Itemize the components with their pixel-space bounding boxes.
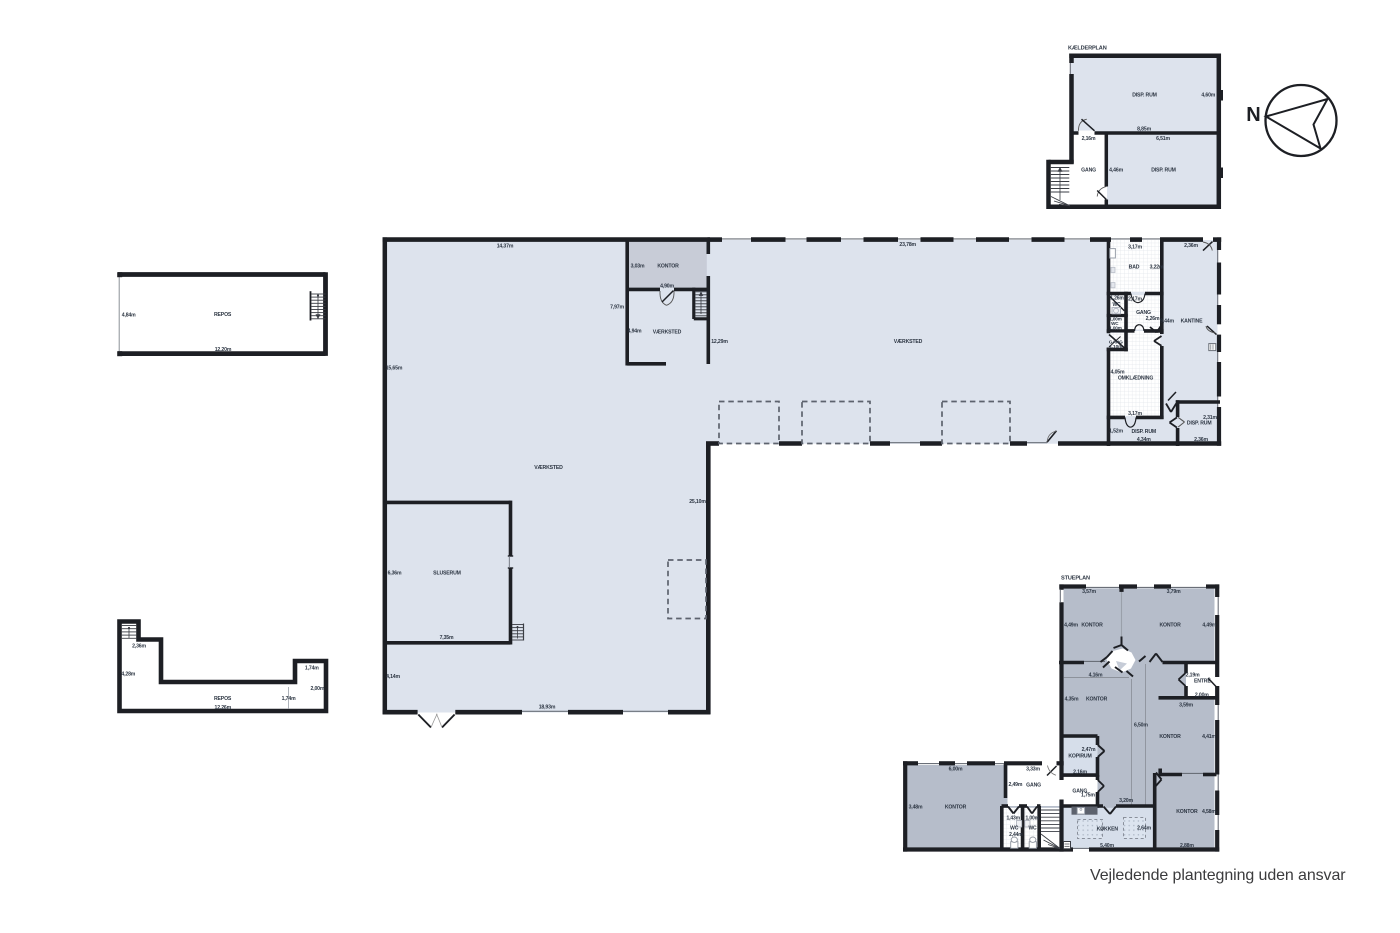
- svg-text:DISP. RUM: DISP. RUM: [1132, 429, 1157, 435]
- svg-text:1,00m: 1,00m: [1109, 326, 1121, 331]
- svg-text:2,16m: 2,16m: [1082, 136, 1096, 142]
- svg-text:3,59m: 3,59m: [1179, 702, 1193, 708]
- svg-text:3,20m: 3,20m: [1119, 798, 1133, 804]
- svg-text:23,78m: 23,78m: [899, 242, 916, 248]
- svg-text:6,50m: 6,50m: [1134, 722, 1148, 728]
- svg-text:2,36m: 2,36m: [1184, 243, 1198, 249]
- svg-text:KONTOR: KONTOR: [1159, 623, 1181, 629]
- svg-text:SLUSERUM: SLUSERUM: [433, 570, 461, 576]
- svg-text:2,47m: 2,47m: [1082, 747, 1096, 753]
- svg-text:3,33m: 3,33m: [1026, 766, 1040, 772]
- svg-text:6,36m: 6,36m: [388, 570, 402, 576]
- svg-text:1,10m: 1,10m: [1109, 344, 1122, 350]
- svg-text:OMKLÆDNING: OMKLÆDNING: [1118, 375, 1153, 381]
- svg-text:1,74m: 1,74m: [305, 666, 319, 672]
- svg-text:KONTOR: KONTOR: [657, 264, 679, 270]
- svg-text:4,49m: 4,49m: [1202, 623, 1216, 629]
- svg-text:4,60m: 4,60m: [1201, 93, 1215, 99]
- svg-text:4,84m: 4,84m: [122, 313, 136, 319]
- svg-text:KONTOR: KONTOR: [1086, 697, 1108, 703]
- svg-text:7,97m: 7,97m: [610, 305, 624, 311]
- svg-text:3,48m: 3,48m: [909, 805, 923, 811]
- svg-text:4,35m: 4,35m: [1065, 697, 1079, 703]
- svg-text:3,57m: 3,57m: [1082, 589, 1096, 595]
- svg-text:4,14m: 4,14m: [386, 674, 400, 680]
- svg-text:14,37m: 14,37m: [497, 244, 514, 250]
- svg-text:2,88m: 2,88m: [1180, 843, 1194, 849]
- svg-text:DISP. RUM: DISP. RUM: [1132, 93, 1157, 99]
- svg-text:KØKKEN: KØKKEN: [1097, 826, 1119, 832]
- svg-text:2,44m: 2,44m: [1009, 832, 1023, 838]
- svg-text:4,49m: 4,49m: [1064, 623, 1078, 629]
- svg-text:WC: WC: [1010, 825, 1019, 831]
- svg-text:KOPIRUM: KOPIRUM: [1068, 754, 1091, 760]
- svg-text:GANG: GANG: [1026, 783, 1041, 789]
- svg-text:2,00m: 2,00m: [310, 686, 324, 692]
- svg-text:KONTOR: KONTOR: [1176, 809, 1198, 815]
- svg-text:BAD: BAD: [1129, 265, 1140, 271]
- svg-text:12,29m: 12,29m: [711, 339, 728, 345]
- svg-text:4,34m: 4,34m: [1137, 437, 1151, 443]
- svg-text:12,20m: 12,20m: [215, 347, 232, 353]
- svg-text:1,00m: 1,00m: [1025, 816, 1039, 822]
- svg-text:3,03m: 3,03m: [631, 264, 645, 270]
- svg-text:2,00m: 2,00m: [1195, 692, 1209, 698]
- svg-text:KÆLDERPLAN: KÆLDERPLAN: [1068, 46, 1107, 52]
- svg-text:2,49m: 2,49m: [1008, 782, 1022, 788]
- svg-text:WC: WC: [1028, 825, 1037, 831]
- svg-text:4,90m: 4,90m: [660, 283, 674, 289]
- svg-text:2,17m: 2,17m: [1128, 296, 1142, 302]
- svg-text:1,52m: 1,52m: [1109, 428, 1123, 434]
- svg-text:7,35m: 7,35m: [440, 635, 454, 641]
- svg-text:1,75m: 1,75m: [1081, 793, 1095, 799]
- svg-text:8,85m: 8,85m: [1137, 127, 1151, 133]
- svg-text:4,41m: 4,41m: [1202, 734, 1216, 740]
- svg-text:12,26m: 12,26m: [215, 705, 232, 711]
- svg-text:4,28m: 4,28m: [121, 672, 135, 678]
- svg-text:4,16m: 4,16m: [1089, 673, 1103, 679]
- svg-text:25,10m: 25,10m: [689, 499, 706, 505]
- svg-text:2,36m: 2,36m: [1194, 437, 1208, 443]
- svg-text:2,16m: 2,16m: [1073, 769, 1087, 775]
- svg-text:5,40m: 5,40m: [1100, 843, 1114, 849]
- svg-text:DISP. RUM: DISP. RUM: [1151, 168, 1176, 174]
- svg-text:2,36m: 2,36m: [132, 643, 146, 649]
- svg-text:N: N: [1246, 104, 1260, 126]
- svg-text:REPOS: REPOS: [214, 312, 232, 318]
- svg-text:18,93m: 18,93m: [539, 705, 556, 711]
- svg-text:3,17m: 3,17m: [1128, 411, 1142, 417]
- svg-text:6,51m: 6,51m: [1156, 136, 1170, 142]
- svg-text:2,26m: 2,26m: [1146, 316, 1160, 322]
- svg-text:VÆRKSTED: VÆRKSTED: [653, 330, 682, 336]
- svg-text:GANG: GANG: [1081, 168, 1096, 174]
- svg-text:6,00m: 6,00m: [949, 766, 963, 772]
- svg-text:4,94m: 4,94m: [628, 329, 642, 335]
- svg-text:KONTOR: KONTOR: [1081, 623, 1103, 629]
- svg-text:KONTOR: KONTOR: [945, 805, 967, 811]
- svg-text:1,43m: 1,43m: [1006, 816, 1020, 822]
- svg-text:Vejledende plantegning uden an: Vejledende plantegning uden ansvar: [1090, 867, 1346, 884]
- svg-text:VÆRKSTED: VÆRKSTED: [894, 339, 923, 345]
- svg-text:ENTRÉ: ENTRÉ: [1194, 677, 1211, 685]
- svg-text:1,26m: 1,26m: [1110, 296, 1124, 302]
- svg-text:9,44m: 9,44m: [1160, 319, 1174, 325]
- svg-text:WC: WC: [1112, 302, 1121, 308]
- svg-text:KONTOR: KONTOR: [1159, 734, 1181, 740]
- svg-text:4,46m: 4,46m: [1109, 168, 1123, 174]
- svg-text:REPOS: REPOS: [214, 696, 232, 702]
- svg-text:2,64m: 2,64m: [1137, 826, 1151, 832]
- svg-text:3,79m: 3,79m: [1167, 589, 1181, 595]
- svg-text:3,17m: 3,17m: [1128, 245, 1142, 251]
- svg-text:KANTINE: KANTINE: [1181, 319, 1204, 325]
- svg-text:DISP. RUM: DISP. RUM: [1187, 421, 1212, 427]
- svg-text:1,74m: 1,74m: [282, 696, 296, 702]
- svg-text:VÆRKSTED: VÆRKSTED: [534, 465, 563, 471]
- svg-text:15,65m: 15,65m: [386, 366, 403, 372]
- svg-text:4,58m: 4,58m: [1202, 809, 1216, 815]
- svg-text:STUEPLAN: STUEPLAN: [1061, 576, 1090, 582]
- svg-text:3,22m: 3,22m: [1150, 265, 1164, 271]
